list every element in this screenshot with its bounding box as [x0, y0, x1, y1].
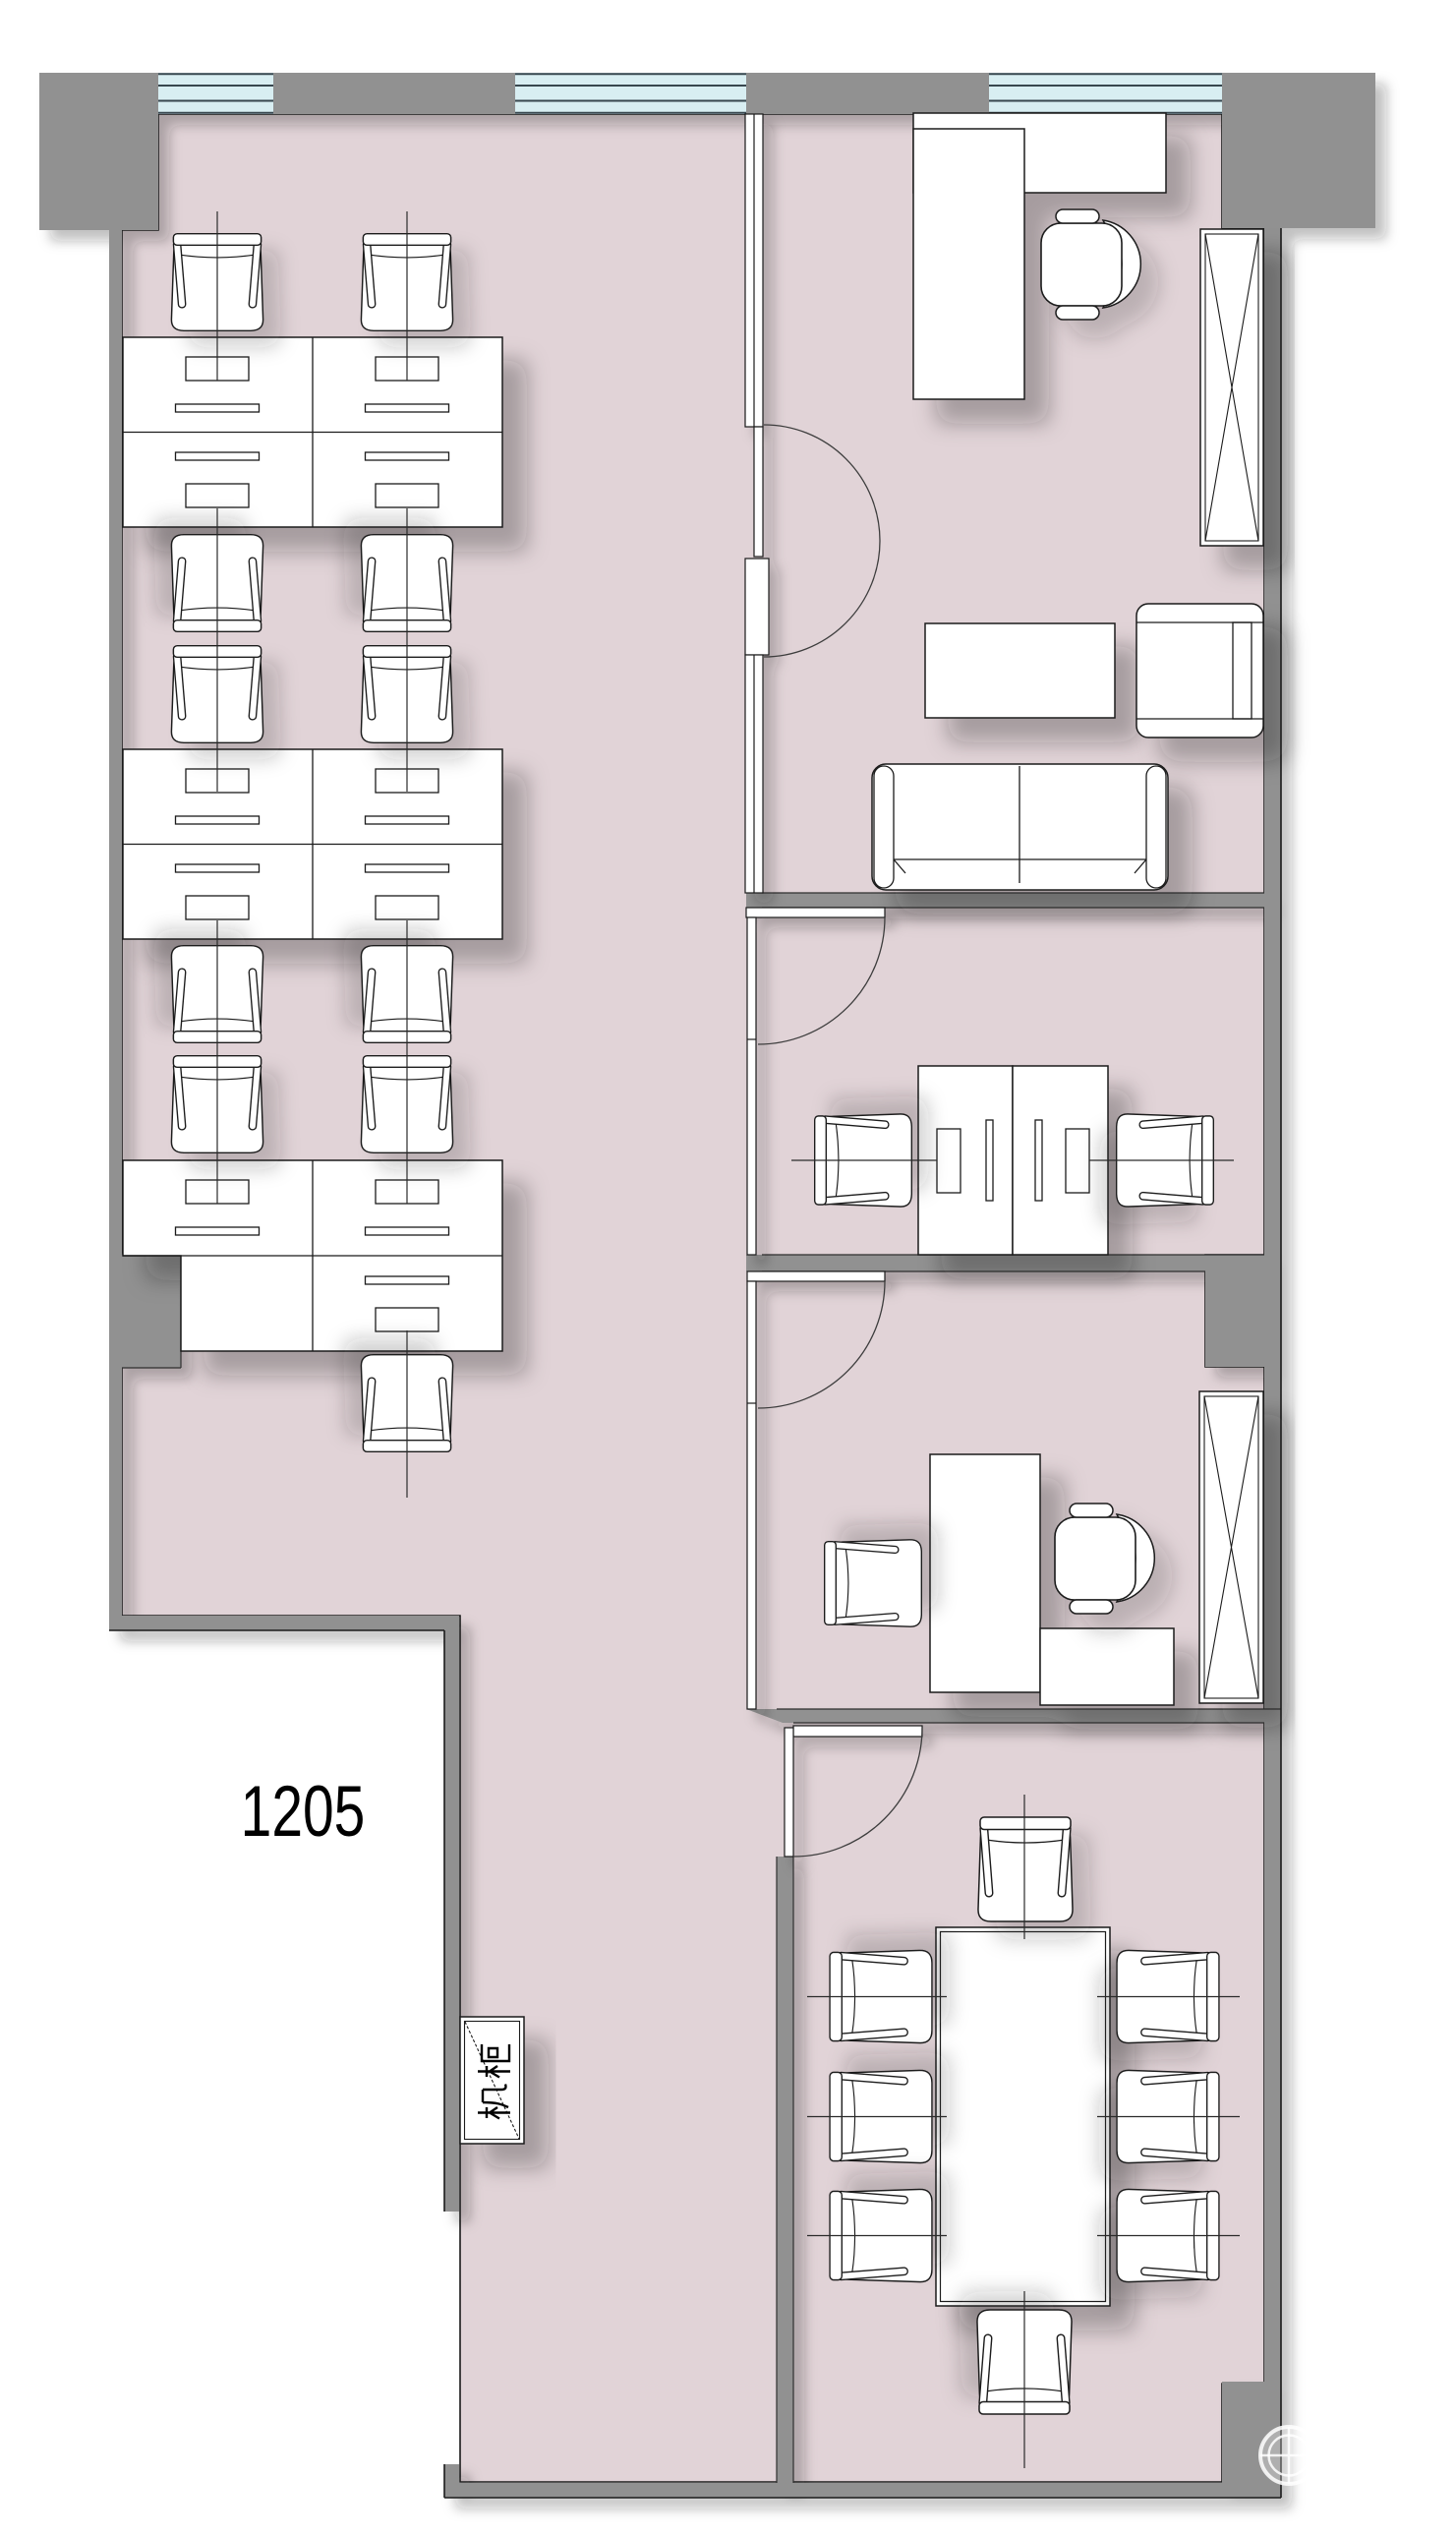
svg-text:1205: 1205: [241, 1771, 366, 1851]
